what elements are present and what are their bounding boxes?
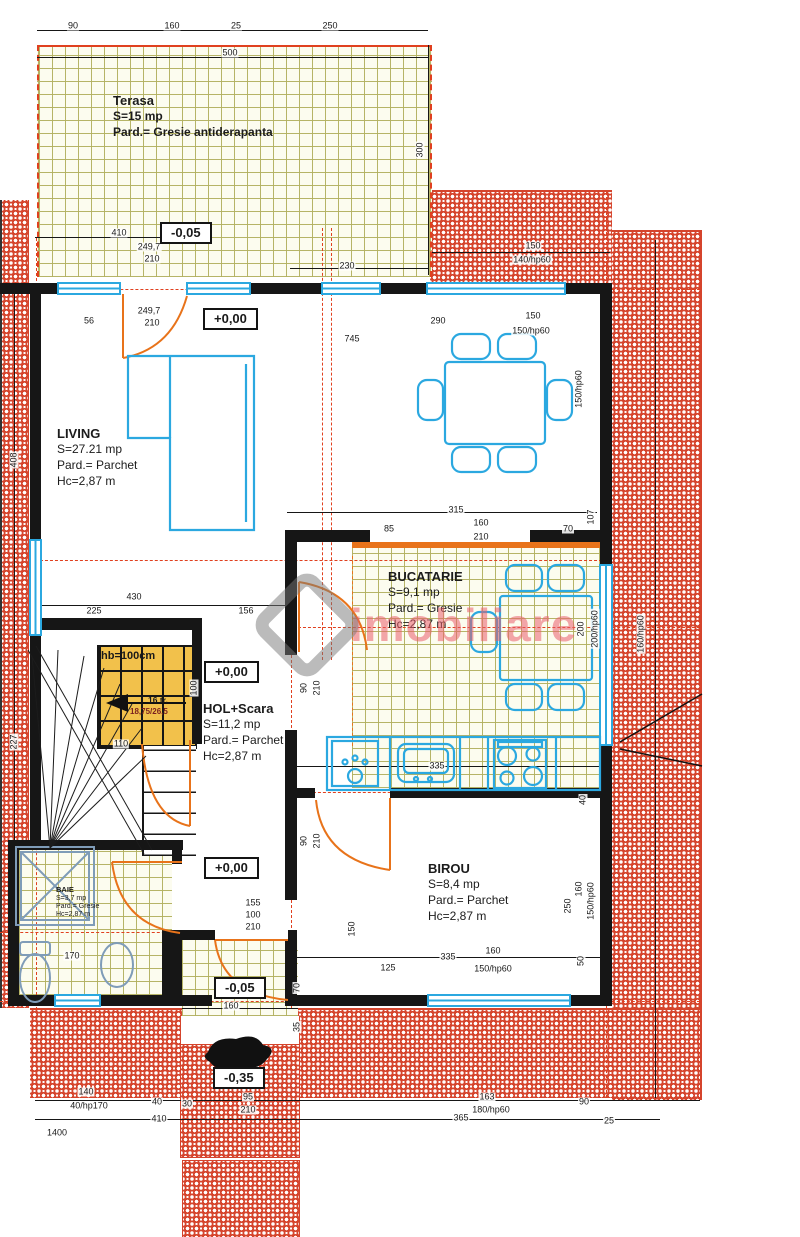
room-label-birou: BIROU S=8,4 mp Pard.= Parchet Hc=2,87 m (428, 860, 508, 925)
room-floor: Pard.= Parchet (57, 458, 137, 474)
room-height: Hc=2,87 m (428, 909, 508, 925)
dimension-line (37, 57, 428, 58)
stairs-tread-label: 18,75/26,5 (130, 707, 168, 716)
dimension-line (37, 30, 428, 31)
room-height: Hc=2,87 m (203, 749, 283, 765)
room-name: BAIE (56, 886, 99, 895)
room-name: Terasa (113, 92, 273, 109)
axis-line (288, 627, 700, 628)
room-name: BUCATARIE (388, 568, 463, 585)
axis-line (30, 560, 612, 561)
dimension-line (655, 240, 656, 1098)
room-label-living: LIVING S=27.21 mp Pard.= Parchet Hc=2,87… (57, 425, 137, 490)
dimension-line (14, 290, 15, 1006)
door-axis-line (352, 556, 353, 746)
dimension-line (182, 1008, 298, 1009)
dimension-line (35, 1119, 660, 1120)
room-area: S=15 mp (113, 109, 273, 125)
elevation-marker: -0,05 (214, 977, 266, 999)
room-height: Hc=2,87 m (56, 911, 99, 919)
dimension-line (35, 1100, 700, 1101)
dimension-line (35, 605, 290, 606)
dimension-line (35, 237, 161, 238)
axis-line (331, 228, 332, 660)
room-height: Hc=2,87 m (57, 474, 137, 490)
room-area: S=11,2 mp (203, 717, 283, 733)
room-floor: Pard.= Parchet (428, 893, 508, 909)
axis-line (288, 792, 700, 793)
room-area: S=8,4 mp (428, 877, 508, 893)
elevation-marker: +0,00 (204, 857, 259, 879)
floor-plan: 9016025250500300410249,721023056249,7210… (0, 0, 800, 1237)
elevation-marker: -0,05 (160, 222, 212, 244)
room-label-terasa: Terasa S=15 mp Pard.= Gresie antiderapan… (113, 92, 273, 141)
room-name: LIVING (57, 425, 137, 442)
axis-line (291, 530, 292, 1008)
room-area: S=27.21 mp (57, 442, 137, 458)
axis-line (606, 192, 607, 1098)
room-floor: Pard.= Parchet (203, 733, 283, 749)
dimension-line (287, 512, 597, 513)
elevation-marker: -0,35 (213, 1067, 265, 1089)
room-area: S=3,7 mp (56, 895, 99, 903)
room-label-bucatarie: BUCATARIE S=9,1 mp Pard.= Gresie Hc=2,87… (388, 568, 463, 633)
room-floor: Pard.= Gresie antiderapanta (113, 125, 273, 141)
room-area: S=9,1 mp (388, 585, 463, 601)
kitchen-cabinet-bar (352, 542, 600, 548)
dimension-line (297, 957, 600, 958)
room-floor: Pard.= Gresie (388, 601, 463, 617)
room-height: Hc=2,87 m (388, 617, 463, 633)
room-label-hol: HOL+Scara S=11,2 mp Pard.= Parchet Hc=2,… (203, 700, 283, 765)
room-floor: Pard.= Gresie (56, 903, 99, 911)
axis-line (36, 238, 37, 1010)
axis-line (0, 932, 175, 933)
dimension-line (432, 252, 610, 253)
stairs-steps-label: 16 tr. (148, 695, 168, 705)
room-name: HOL+Scara (203, 700, 283, 717)
stairs-handrail-label: hb=100cm (101, 650, 155, 662)
room-label-baie: BAIE S=3,7 mp Pard.= Gresie Hc=2,87 m (56, 886, 99, 919)
elevation-marker: +0,00 (204, 661, 259, 683)
axis-line (0, 289, 700, 290)
elevation-marker: +0,00 (203, 308, 258, 330)
axis-line (0, 1001, 700, 1002)
dimension-line (297, 766, 600, 767)
stairs-flight (142, 746, 196, 856)
dimension-line (428, 45, 429, 275)
room-name: BIROU (428, 860, 508, 877)
dimension-line (290, 268, 428, 269)
axis-line (322, 228, 323, 660)
